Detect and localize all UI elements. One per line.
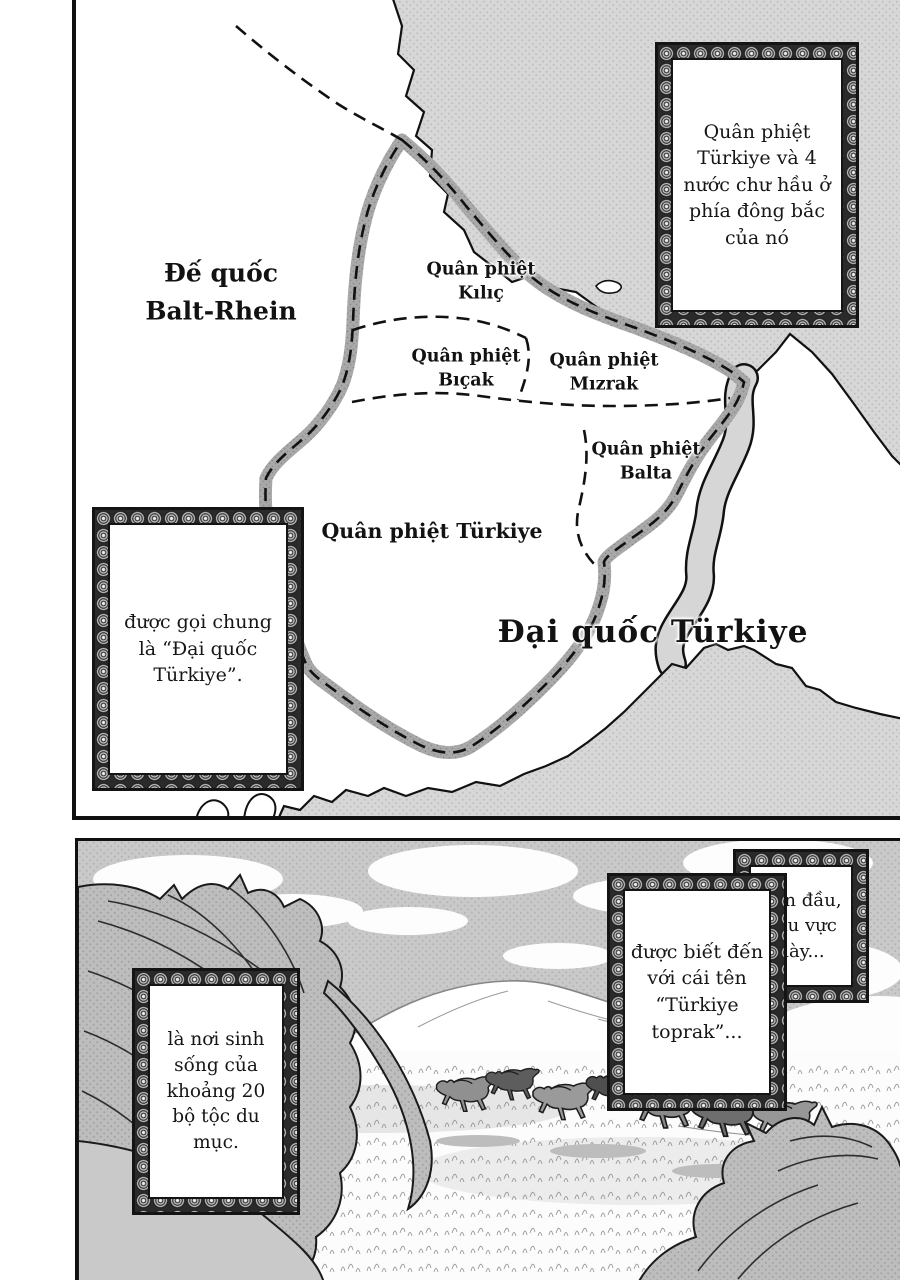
label-kilic-line2: Kılıç	[427, 282, 536, 306]
label-region-balta: Quân phiệt Balta	[592, 438, 701, 485]
label-empire-line2: Balt-Rhein	[145, 292, 296, 330]
label-kilic-line1: Quân phiệt	[427, 258, 536, 282]
caption-tribes-text: là nơi sinh sống của khoảng 20 bộ tộc du…	[154, 1027, 278, 1156]
sea-south	[276, 644, 900, 820]
caption-box-west: được gọi chung là “Đại quốc Türkiye”.	[92, 507, 304, 791]
caption-known-as-text: được biết đến với cái tên “Türkiye topra…	[629, 939, 765, 1045]
caption-northeast-text: Quân phiệt Türkiye và 4 nước chư hầu ở p…	[677, 119, 837, 252]
label-territory-turkiye: Quân phiệt Türkiye	[321, 518, 542, 546]
label-bicak-line2: Bıçak	[412, 369, 521, 393]
label-bicak-line1: Quân phiệt	[412, 345, 521, 369]
boundary-northwest	[236, 26, 402, 140]
manga-page: Đế quốc Balt-Rhein Quân phiệt Kılıç Quân…	[0, 0, 900, 1280]
caption-box-northeast-inner: Quân phiệt Türkiye và 4 nước chư hầu ở p…	[671, 58, 843, 312]
caption-box-known-as-inner: được biết đến với cái tên “Türkiye topra…	[623, 889, 771, 1095]
label-region-mizrak: Quân phiệt Mızrak	[550, 349, 659, 396]
caption-box-tribes-inner: là nơi sinh sống của khoảng 20 bộ tộc du…	[148, 984, 284, 1199]
label-balta-line2: Balta	[592, 462, 701, 486]
caption-box-known-as: được biết đến với cái tên “Türkiye topra…	[607, 873, 787, 1111]
label-mizrak-line2: Mızrak	[550, 373, 659, 397]
label-nation-turkiye: Đại quốc Türkiye	[498, 612, 809, 654]
label-mizrak-line1: Quân phiệt	[550, 349, 659, 373]
coast-islets	[196, 794, 275, 820]
label-balta-line1: Quân phiệt	[592, 438, 701, 462]
island	[596, 281, 621, 294]
boundary-mizrak-south	[352, 393, 730, 406]
caption-west-text: được gọi chung là “Đại quốc Türkiye”.	[114, 609, 282, 689]
label-region-bicak: Quân phiệt Bıçak	[412, 345, 521, 392]
label-region-kilic: Quân phiệt Kılıç	[427, 258, 536, 305]
caption-box-northeast: Quân phiệt Türkiye và 4 nước chư hầu ở p…	[655, 42, 859, 328]
caption-box-tribes: là nơi sinh sống của khoảng 20 bộ tộc du…	[132, 968, 300, 1215]
label-empire-line1: Đế quốc	[145, 255, 296, 293]
boundary-kilic-south	[353, 317, 526, 338]
label-empire: Đế quốc Balt-Rhein	[145, 255, 296, 330]
caption-box-west-inner: được gọi chung là “Đại quốc Türkiye”.	[108, 523, 288, 775]
